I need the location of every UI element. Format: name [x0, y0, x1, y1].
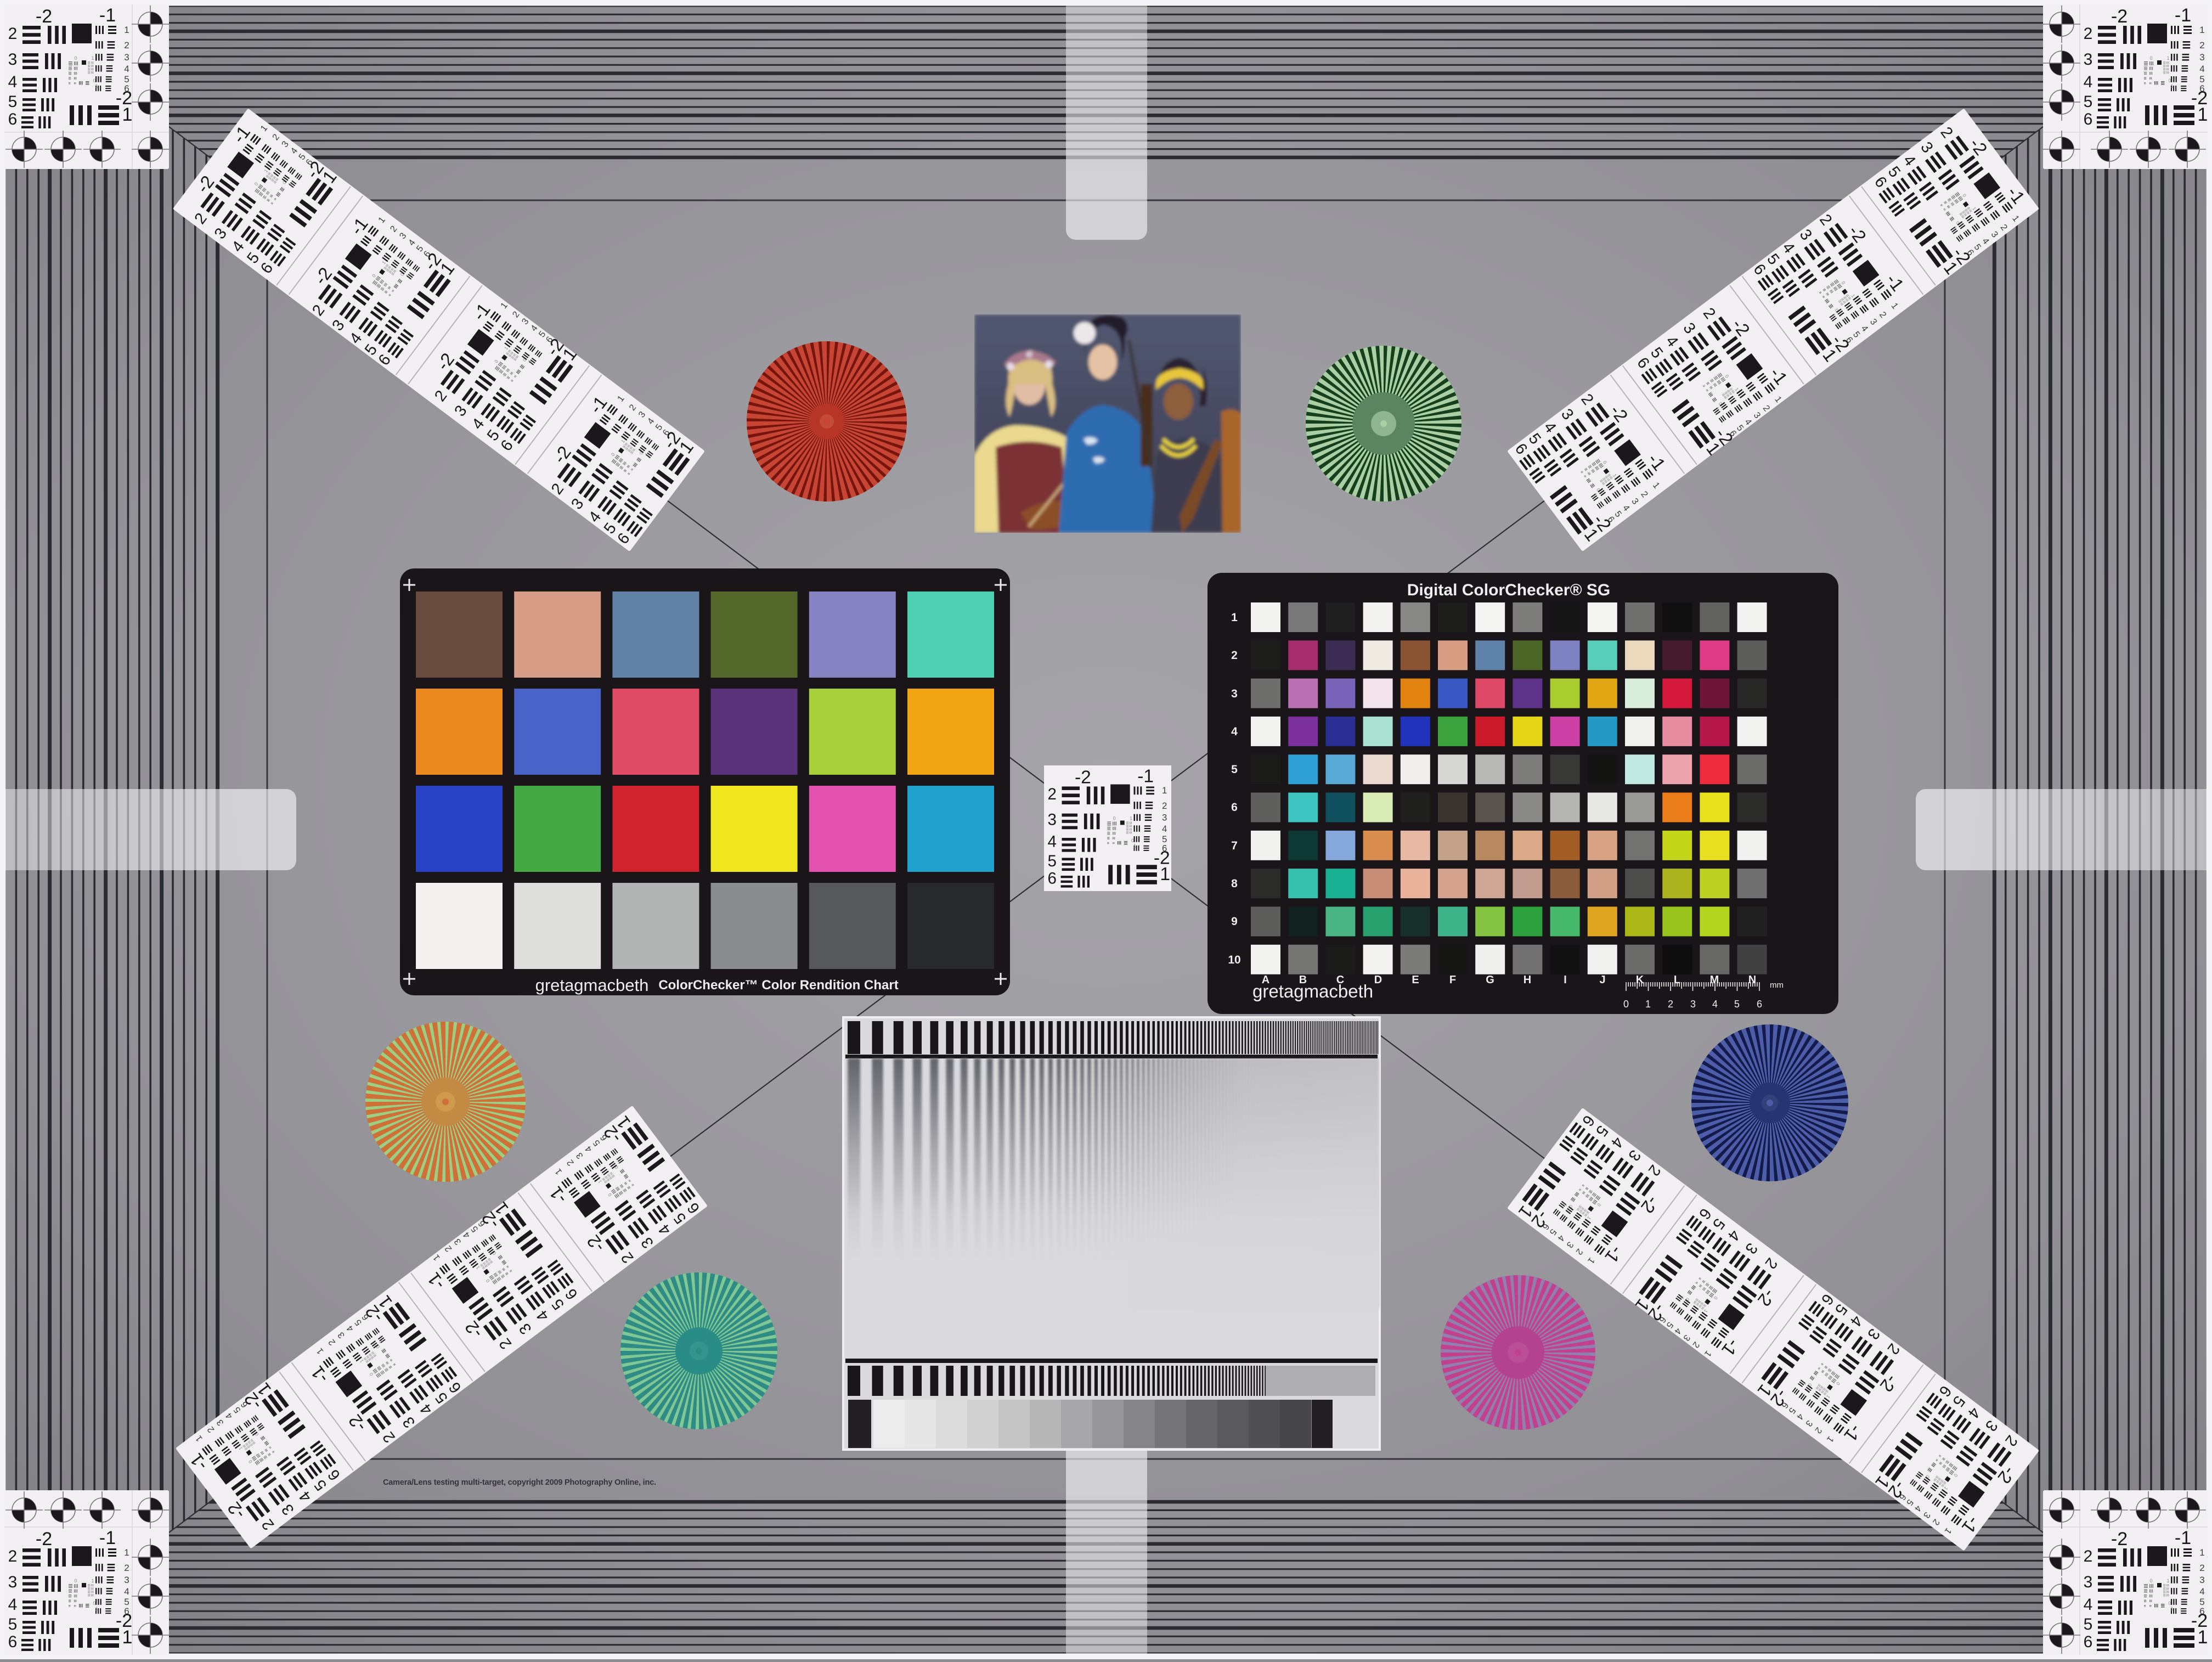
svg-text:6: 6: [1231, 801, 1238, 814]
svg-text:8: 8: [1231, 877, 1238, 890]
svg-text:mm: mm: [1770, 981, 1784, 990]
svg-text:5: 5: [1231, 763, 1238, 776]
svg-text:4: 4: [1712, 999, 1718, 1010]
svg-text:F: F: [1449, 974, 1456, 986]
svg-text:10: 10: [1228, 954, 1240, 966]
svg-text:4: 4: [1231, 725, 1238, 738]
svg-text:7: 7: [1231, 840, 1238, 852]
svg-text:6: 6: [1757, 999, 1762, 1010]
svg-text:1: 1: [1645, 999, 1651, 1010]
svg-text:J: J: [1599, 974, 1605, 986]
svg-text:gretagmacbeth: gretagmacbeth: [1252, 981, 1373, 1001]
svg-text:0: 0: [1623, 999, 1629, 1010]
svg-text:5: 5: [1734, 999, 1740, 1010]
svg-text:2: 2: [1231, 649, 1238, 662]
svg-text:E: E: [1412, 974, 1419, 986]
svg-text:D: D: [1374, 974, 1382, 986]
svg-text:3: 3: [1231, 688, 1238, 700]
svg-text:gretagmacbeth: gretagmacbeth: [535, 976, 649, 995]
svg-text:ColorChecker™ Color Rendition: ColorChecker™ Color Rendition Chart: [658, 978, 898, 993]
svg-text:1: 1: [1231, 611, 1238, 624]
svg-text:H: H: [1523, 974, 1531, 986]
svg-text:2: 2: [1668, 999, 1673, 1010]
svg-text:9: 9: [1231, 915, 1238, 928]
svg-text:I: I: [1564, 974, 1567, 986]
svg-text:G: G: [1486, 974, 1494, 986]
svg-text:Digital ColorChecker® SG: Digital ColorChecker® SG: [1407, 581, 1611, 599]
svg-text:3: 3: [1690, 999, 1696, 1010]
svg-text:Camera/Lens testing multi-targ: Camera/Lens testing multi-target, copyri…: [383, 1478, 656, 1487]
